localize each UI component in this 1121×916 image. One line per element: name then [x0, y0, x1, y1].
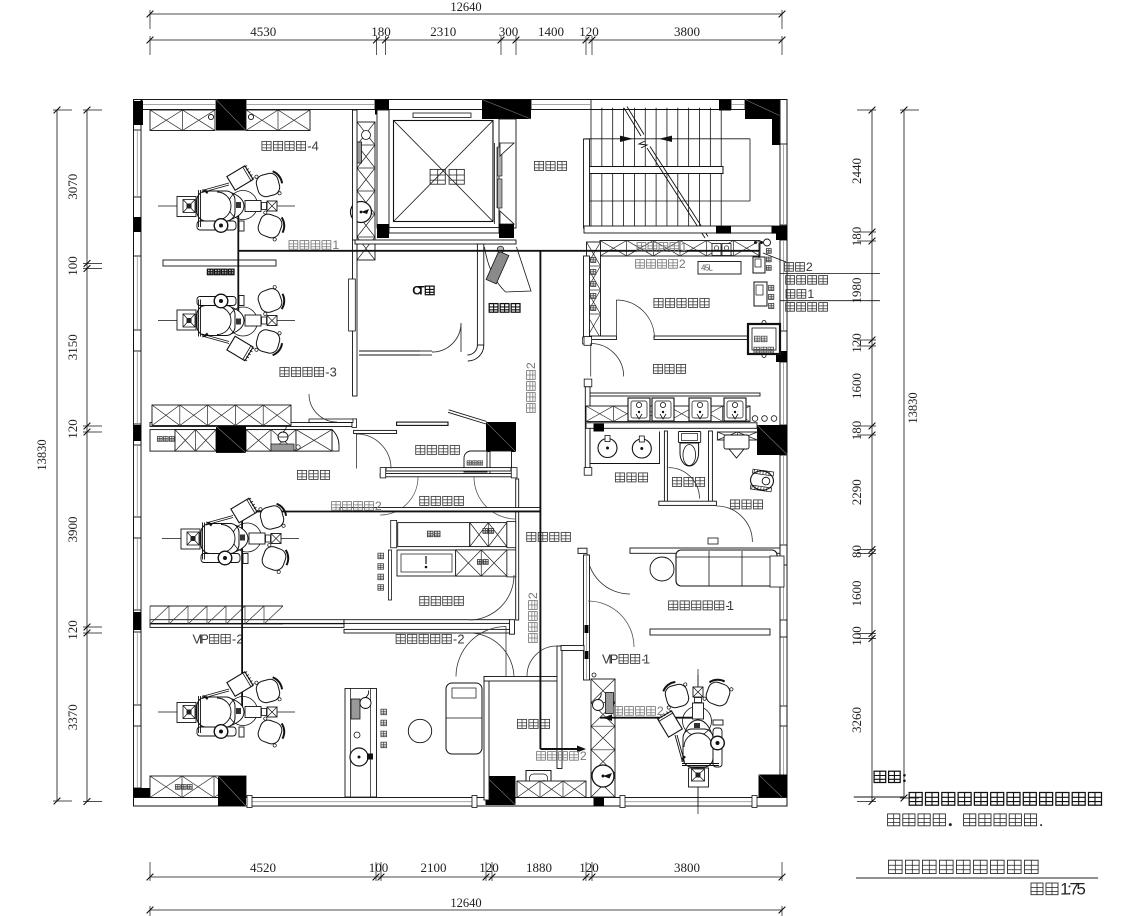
svg-text:4520: 4520 [250, 860, 276, 875]
svg-text:3070: 3070 [65, 174, 80, 200]
svg-text:-2: -2 [453, 631, 465, 646]
svg-text:120: 120 [479, 860, 499, 875]
svg-text:VIP: VIP [193, 631, 209, 646]
svg-text:12640: 12640 [450, 896, 481, 910]
svg-text:-4: -4 [307, 138, 319, 153]
svg-text:13830: 13830 [906, 392, 920, 423]
svg-text:45L: 45L [701, 264, 713, 273]
svg-text:1:75: 1:75 [1060, 880, 1086, 899]
svg-text:1: 1 [680, 240, 687, 254]
svg-text:180: 180 [371, 24, 391, 39]
svg-text:2: 2 [526, 592, 540, 599]
svg-text:2100: 2100 [421, 860, 447, 875]
svg-text:80: 80 [849, 545, 864, 558]
svg-text:VIP: VIP [602, 651, 618, 666]
svg-text:1880: 1880 [526, 860, 552, 875]
svg-text:120: 120 [579, 24, 599, 39]
svg-text:180: 180 [849, 227, 864, 247]
svg-text:3800: 3800 [674, 24, 700, 39]
svg-text:2310: 2310 [430, 24, 456, 39]
svg-text:-3: -3 [325, 364, 337, 379]
svg-text:13830: 13830 [35, 439, 49, 470]
svg-text:3260: 3260 [849, 707, 864, 733]
svg-text:2: 2 [580, 749, 587, 763]
svg-text:3370: 3370 [65, 704, 80, 730]
svg-text:2: 2 [524, 362, 538, 369]
svg-text:1600: 1600 [849, 581, 864, 607]
svg-text:2: 2 [806, 260, 813, 274]
svg-text:2: 2 [679, 257, 686, 271]
svg-text:120: 120 [65, 419, 80, 439]
svg-text:100: 100 [65, 256, 80, 276]
svg-text:1980: 1980 [849, 278, 864, 304]
svg-text:180: 180 [849, 421, 864, 441]
svg-text:300: 300 [499, 24, 519, 39]
svg-text:-1: -1 [641, 651, 650, 666]
svg-text:2290: 2290 [849, 479, 864, 505]
svg-text:120: 120 [849, 333, 864, 353]
svg-text:1: 1 [332, 238, 339, 252]
svg-text:3800: 3800 [674, 860, 700, 875]
svg-text:2440: 2440 [849, 158, 864, 184]
svg-text:4530: 4530 [250, 24, 276, 39]
svg-text:2: 2 [375, 499, 382, 513]
svg-text:1: 1 [807, 287, 814, 301]
svg-text:CT: CT [412, 284, 425, 298]
svg-text:3150: 3150 [65, 334, 80, 360]
svg-text:1400: 1400 [538, 24, 564, 39]
svg-text:12640: 12640 [450, 0, 481, 14]
svg-text:120: 120 [65, 620, 80, 640]
svg-text:120: 120 [579, 860, 599, 875]
svg-text:100: 100 [849, 626, 864, 646]
svg-text:100: 100 [369, 860, 389, 875]
svg-text:.: . [1039, 811, 1044, 830]
svg-text:-1: -1 [725, 598, 734, 613]
svg-text:1600: 1600 [849, 373, 864, 399]
svg-text:3900: 3900 [65, 517, 80, 543]
